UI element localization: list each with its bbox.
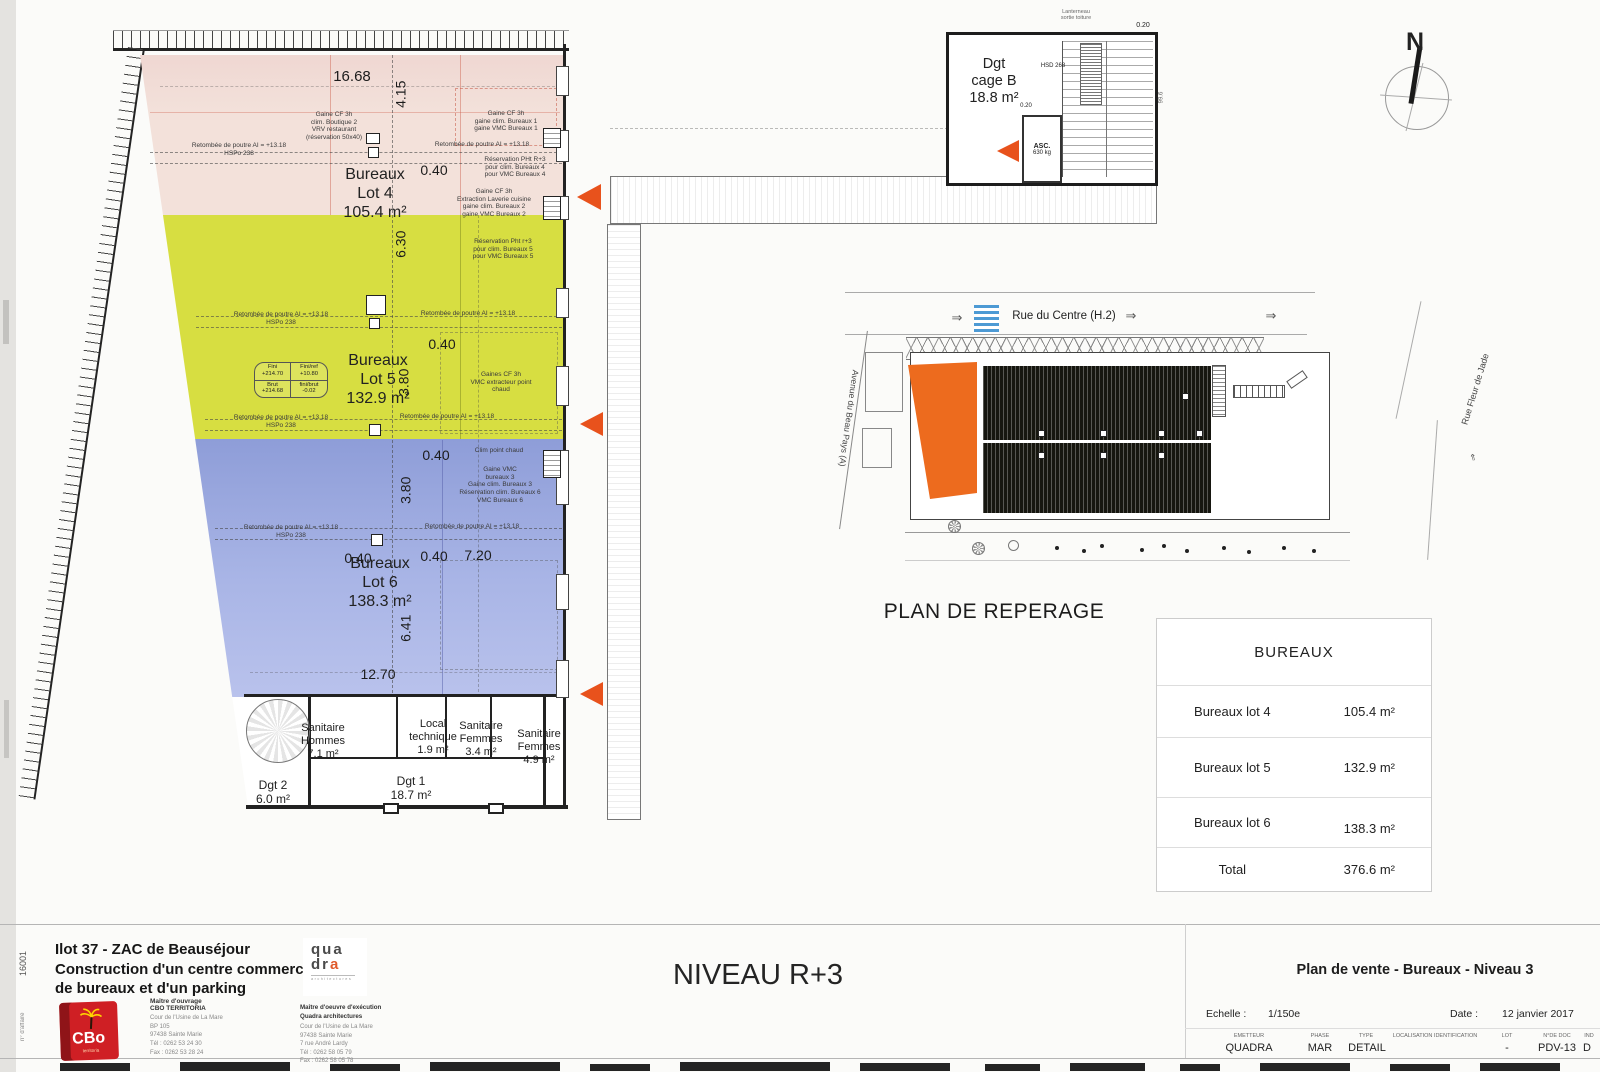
phase-label: PHASE — [1300, 1033, 1340, 1039]
site-arrow: ⇒ — [948, 310, 966, 325]
site-roof-vent — [1182, 393, 1189, 400]
note-retombee-hspo: Retombée de poutre AI = +13.18 HSPo 238 — [232, 524, 350, 539]
emetteur-label: EMETTEUR — [1224, 1033, 1274, 1039]
beam-line — [205, 430, 562, 431]
cage-dim-020b: 0.20 — [1012, 103, 1040, 110]
lot4-label: Bureaux Lot 4 105.4 m² — [330, 166, 420, 223]
site-tree-dot — [1162, 544, 1166, 548]
site-street-line — [845, 292, 1315, 293]
column-marker — [369, 318, 380, 329]
scan-mark — [680, 1062, 830, 1071]
type-label: TYPE — [1350, 1033, 1382, 1039]
column-marker — [371, 534, 383, 546]
site-street-top-label: Rue du Centre (H.2) — [1008, 310, 1120, 324]
cbo-logo-text: CBo — [72, 1029, 105, 1048]
scan-mark — [430, 1062, 560, 1071]
note-gaine-b1: Gaine CF 3h gaine clim. Bureaux 1 gaine … — [462, 110, 550, 133]
door-threshold — [488, 803, 504, 814]
site-tree-dot — [1222, 546, 1226, 550]
stair-divider — [1106, 41, 1107, 177]
dim-0-40-d: 0.40 — [336, 550, 380, 567]
room-wall — [396, 697, 398, 759]
cbo-logo: CBo territoria — [59, 1001, 119, 1061]
level-fini: Fini +214.70 — [255, 363, 291, 381]
site-tree — [1008, 540, 1019, 551]
table-row-total: Total 376.6 m² — [1157, 847, 1431, 891]
table-row-value: 132.9 m² — [1308, 760, 1431, 775]
site-tree-dot — [1282, 546, 1286, 550]
column-marker — [366, 295, 386, 315]
duct-shaft — [543, 196, 561, 220]
site-tree — [972, 542, 985, 555]
site-roof-vent — [1158, 452, 1165, 459]
quadra-address: Cour de l'Usine de La Mare 97438 Sainte … — [300, 1023, 430, 1065]
drawing-title: Plan de vente - Bureaux - Niveau 3 — [1295, 962, 1535, 979]
site-road-curve — [1396, 301, 1422, 419]
room-sanitaire-femmes-2: Sanitaire Femmes 4.9 m² — [508, 728, 570, 767]
scan-mark — [180, 1062, 290, 1071]
column-marker — [368, 147, 379, 158]
note-gaines-vmc: Gaines CF 3h VMC extracteur point chaud — [460, 371, 542, 394]
table-row-label: Bureaux lot 6 — [1157, 815, 1308, 830]
table-row-label: Total — [1157, 862, 1308, 877]
table-row: Bureaux lot 5 132.9 m² — [1157, 737, 1431, 797]
site-plan-title: PLAN DE REPERAGE — [874, 600, 1114, 625]
scan-mark — [1480, 1063, 1560, 1071]
scan-mark — [60, 1063, 130, 1071]
project-number: 16001 — [18, 938, 34, 988]
scan-mark — [860, 1063, 950, 1071]
cage-b-label: Dgt cage B 18.8 m² — [962, 56, 1026, 107]
window-opening — [556, 660, 569, 698]
site-sidewalk-line — [905, 560, 1350, 561]
cage-dim-996: 99.6 — [1158, 86, 1165, 110]
site-roof-vent — [1196, 430, 1203, 437]
roof-exit-note: Lanterneau sortie toiture — [1052, 9, 1100, 22]
scan-mark — [985, 1064, 1040, 1071]
entry-arrow — [580, 412, 603, 436]
date-label: Date : — [1450, 1008, 1490, 1020]
site-street-line — [845, 334, 1307, 335]
dim-16-68: 16.68 — [322, 68, 382, 86]
scale-value: 1/150e — [1268, 1008, 1318, 1020]
scan-mark — [1070, 1063, 1145, 1071]
table-row: Bureaux lot 6 138.3 m² — [1157, 797, 1431, 847]
dim-line — [160, 86, 560, 87]
palm-tree-icon — [77, 1004, 104, 1031]
site-sidewalk-line — [905, 532, 1350, 533]
entry-arrow — [997, 140, 1019, 162]
note-resa-b5: Réservation Pht r+3 pour clim. Bureaux 5… — [466, 238, 540, 261]
site-tree-dot — [1082, 549, 1086, 553]
type-value: DETAIL — [1344, 1042, 1390, 1055]
site-roof-vent — [1100, 430, 1107, 437]
site-tree — [948, 520, 961, 533]
scan-mark — [590, 1064, 650, 1071]
site-roof-vent — [1158, 430, 1165, 437]
scan-mark — [1260, 1063, 1350, 1071]
level-finibrut: fini/brut -0.02 — [291, 381, 327, 398]
window-opening — [556, 288, 569, 318]
scan-mark — [1180, 1064, 1220, 1071]
note-gaine-b3: Gaine VMC bureaux 3 Gaine clim. Bureaux … — [450, 466, 550, 504]
note-gaine-boutique: Gaine CF 3h clim. Boutique 2 VRV restaur… — [295, 111, 373, 142]
axis-line — [478, 215, 479, 697]
ind-value: D — [1578, 1042, 1596, 1055]
room-sanitaire-femmes-1: Sanitaire Femmes 3.4 m² — [450, 720, 512, 759]
room-sanitaire-hommes: Sanitaire Hommes 7.1 m² — [292, 722, 354, 761]
plan-sheet: Bureaux Lot 4 105.4 m² Bureaux Lot 5 132… — [0, 0, 1600, 1072]
note-clim-chaud: Clim point chaud — [466, 447, 532, 455]
site-roof-vent — [1038, 430, 1045, 437]
dim-6-30: 6.30 — [393, 224, 410, 264]
stair-ladder — [1080, 43, 1102, 105]
affaire-label: n° d'affaire — [20, 1002, 32, 1052]
site-left-building — [865, 352, 903, 412]
window-opening — [556, 366, 569, 406]
quadra-role: Maître d'oeuvre d'exécution Quadra archi… — [300, 1004, 430, 1021]
site-street-right-label: Rue Fleur de Jade — [1450, 321, 1506, 460]
asc-load: 630 kg — [1033, 150, 1051, 156]
north-label: N — [1400, 28, 1430, 58]
cbo-role: Maître d'ouvrage — [150, 998, 280, 1005]
quadra-logo-line2b: a — [330, 956, 340, 973]
quadra-logo-line2a: dr — [311, 956, 330, 973]
lot-value: - — [1498, 1042, 1516, 1055]
dim-12-70: 12.70 — [350, 666, 406, 683]
note-retombee: Retombée de poutre AI = +13.18 — [406, 310, 530, 318]
entry-arrow — [577, 184, 601, 210]
site-tree-dot — [1247, 550, 1251, 554]
doc-value: PDV-13 — [1532, 1042, 1582, 1055]
site-roof-vent — [1100, 452, 1107, 459]
site-stair-column — [1212, 365, 1226, 417]
table-row-value: 138.3 m² — [1308, 809, 1431, 836]
emetteur-value: QUADRA — [1222, 1042, 1276, 1055]
site-road-curve — [1427, 420, 1438, 560]
level-title: NIVEAU R+3 — [648, 958, 868, 992]
scan-mark — [330, 1064, 400, 1071]
quadra-logo: qua dra architectures — [303, 938, 367, 996]
scale-label: Echelle : — [1206, 1008, 1266, 1020]
dim-7-20: 7.20 — [455, 547, 501, 564]
table-row-value: 105.4 m² — [1308, 704, 1431, 719]
site-roof-vent — [1038, 452, 1045, 459]
site-tree-dot — [1100, 544, 1104, 548]
note-resa-b4: Réservation PHt R+3 pour clim. Bureaux 4… — [476, 156, 554, 179]
dim-0-40-a: 0.40 — [412, 162, 456, 179]
titleblock-divider-bottom — [0, 1058, 1600, 1059]
level-marker: Fini +214.70 Fini/ref +10.80 Brut +214.6… — [254, 362, 328, 398]
doc-label: N°DE DOC — [1534, 1033, 1580, 1039]
level-brut: Brut +214.68 — [255, 381, 291, 398]
table-row-label: Bureaux lot 4 — [1157, 704, 1308, 719]
room-dgt1: Dgt 1 18.7 m² — [380, 774, 442, 802]
asc-cabin: ASC. 630 kg — [1022, 115, 1062, 183]
note-retombee-hspo: Retombée de poutre AI = +13.18 HSPo 238 — [222, 414, 340, 429]
date-value: 12 janvier 2017 — [1502, 1008, 1597, 1020]
titleblock-hline — [1185, 1028, 1600, 1029]
note-retombee: Retombée de poutre AI = +13.18 — [385, 413, 509, 421]
site-terrace-grid — [1233, 385, 1285, 398]
site-roof-dark — [983, 366, 1211, 440]
cage-b-hsd: HSD 268 — [1032, 63, 1074, 70]
asc-label: ASC. — [1034, 143, 1051, 150]
reservation-box — [440, 560, 558, 670]
note-retombee: Retombée de poutre AI = +13.18 — [420, 141, 544, 149]
dim-line — [250, 672, 562, 673]
localisation-label: LOCALISATION IDENTIFICATION — [1388, 1033, 1482, 1039]
dim-0-40-e: 0.40 — [412, 548, 456, 565]
site-tree-dot — [1185, 549, 1189, 553]
site-arrow-left: ⇐ — [1466, 449, 1480, 465]
bureaux-table: BUREAUX Bureaux lot 4 105.4 m² Bureaux l… — [1156, 618, 1432, 892]
lot-label: LOT — [1496, 1033, 1518, 1039]
site-arrow: ⇒ — [1262, 308, 1280, 323]
quadra-logo-sub: architectures — [311, 975, 355, 981]
table-row-label: Bureaux lot 5 — [1157, 760, 1308, 775]
quadra-info: Maître d'oeuvre d'exécution Quadra archi… — [300, 1004, 430, 1065]
scan-edge-left — [0, 0, 16, 1072]
entry-arrow — [580, 682, 603, 706]
cage-dim-020a: 0.20 — [1128, 22, 1158, 30]
dim-0-40-c: 0.40 — [414, 447, 458, 464]
cbo-info: Maître d'ouvrage CBO TERRITORIA Cour de … — [150, 998, 280, 1057]
table-row: Bureaux lot 4 105.4 m² — [1157, 685, 1431, 737]
site-tree-dot — [1140, 548, 1144, 552]
window-opening — [556, 66, 569, 96]
dim-6-41: 6.41 — [398, 608, 415, 648]
titleblock-divider-top — [0, 924, 1600, 925]
site-roof-dark — [983, 443, 1211, 513]
dim-0-40-b: 0.40 — [420, 336, 464, 353]
titleblock-vline — [1185, 924, 1186, 1058]
level-finiref: Fini/ref +10.80 — [291, 363, 327, 381]
dim-3-80-a: 3.80 — [396, 362, 413, 402]
exterior-wall-top — [113, 30, 569, 51]
note-retombee: Retombée de poutre AI = +13.18 — [410, 523, 534, 531]
bureaux-table-title: BUREAUX — [1157, 619, 1431, 685]
stair-flight — [1062, 41, 1153, 177]
scan-smudge — [4, 700, 9, 758]
cbo-logo-sub: territoria — [83, 1048, 100, 1054]
dim-4-15: 4.15 — [393, 74, 410, 114]
door-threshold — [383, 803, 399, 814]
site-crosswalk — [974, 305, 999, 334]
cbo-address: Cour de l'Usine de La Mare BP 105 97438 … — [150, 1014, 280, 1057]
site-arrow: ⇒ — [1122, 308, 1140, 323]
window-opening — [556, 574, 569, 610]
scan-mark — [1390, 1064, 1450, 1071]
note-gaine-b2: Gaine CF 3h Extraction Laverie cuisine g… — [446, 188, 542, 219]
scan-smudge — [3, 300, 9, 344]
site-tree-dot — [1312, 549, 1316, 553]
dim-3-80-b: 3.80 — [398, 470, 415, 510]
corridor-vertical — [607, 224, 641, 820]
exterior-wall-left — [19, 47, 145, 800]
table-row-value: 376.6 m² — [1308, 862, 1431, 877]
site-tree-dot — [1055, 546, 1059, 550]
ind-label: IND — [1580, 1033, 1598, 1039]
site-left-building — [862, 428, 892, 468]
wall-service-top — [244, 694, 568, 697]
note-retombee-hspo: Retombée de poutre AI = +13.18 HSPo 238 — [222, 311, 340, 326]
note-retombee-hspo: Retombée de poutre AI = +13.18 HSPo 238 — [180, 142, 298, 157]
phase-value: MAR — [1299, 1042, 1341, 1055]
column-marker — [369, 424, 381, 436]
room-dgt2: Dgt 2 6.0 m² — [246, 778, 300, 806]
cbo-name: CBO TERRITORIA — [150, 1005, 280, 1012]
